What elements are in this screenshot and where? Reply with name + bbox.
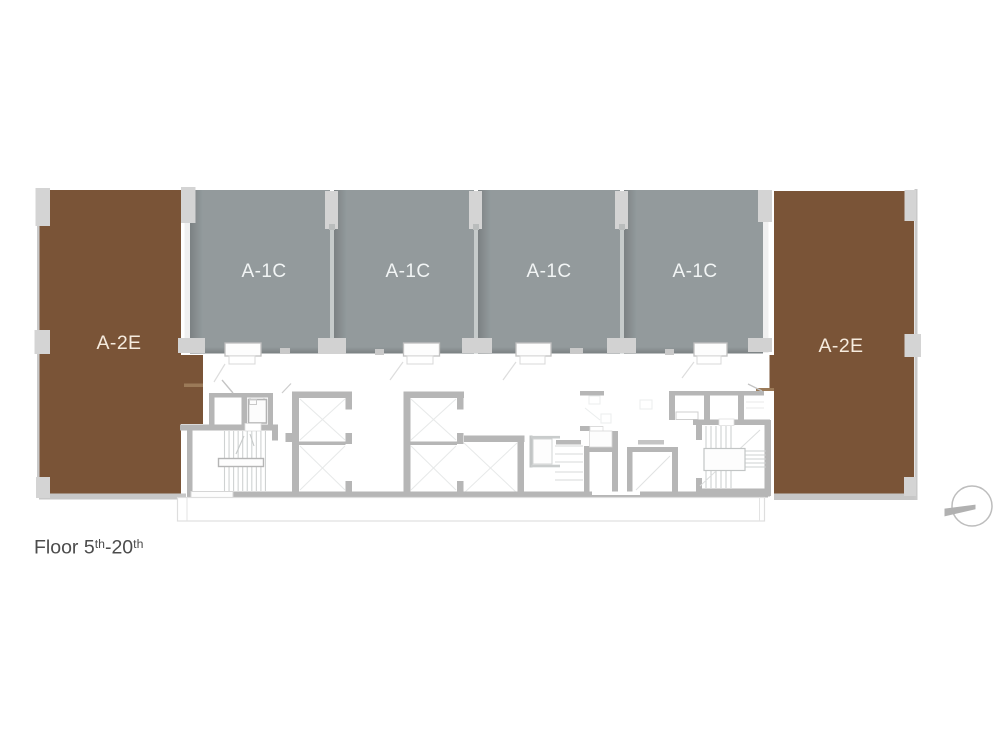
svg-text:A-2E: A-2E [97,332,142,354]
svg-text:A-1C: A-1C [673,261,718,282]
svg-text:A-1C: A-1C [527,261,572,282]
svg-text:A-1C: A-1C [242,261,287,282]
svg-text:Floor 5th-20th: Floor 5th-20th [34,537,144,559]
svg-text:A-1C: A-1C [386,261,431,282]
svg-text:A-2E: A-2E [819,335,864,357]
